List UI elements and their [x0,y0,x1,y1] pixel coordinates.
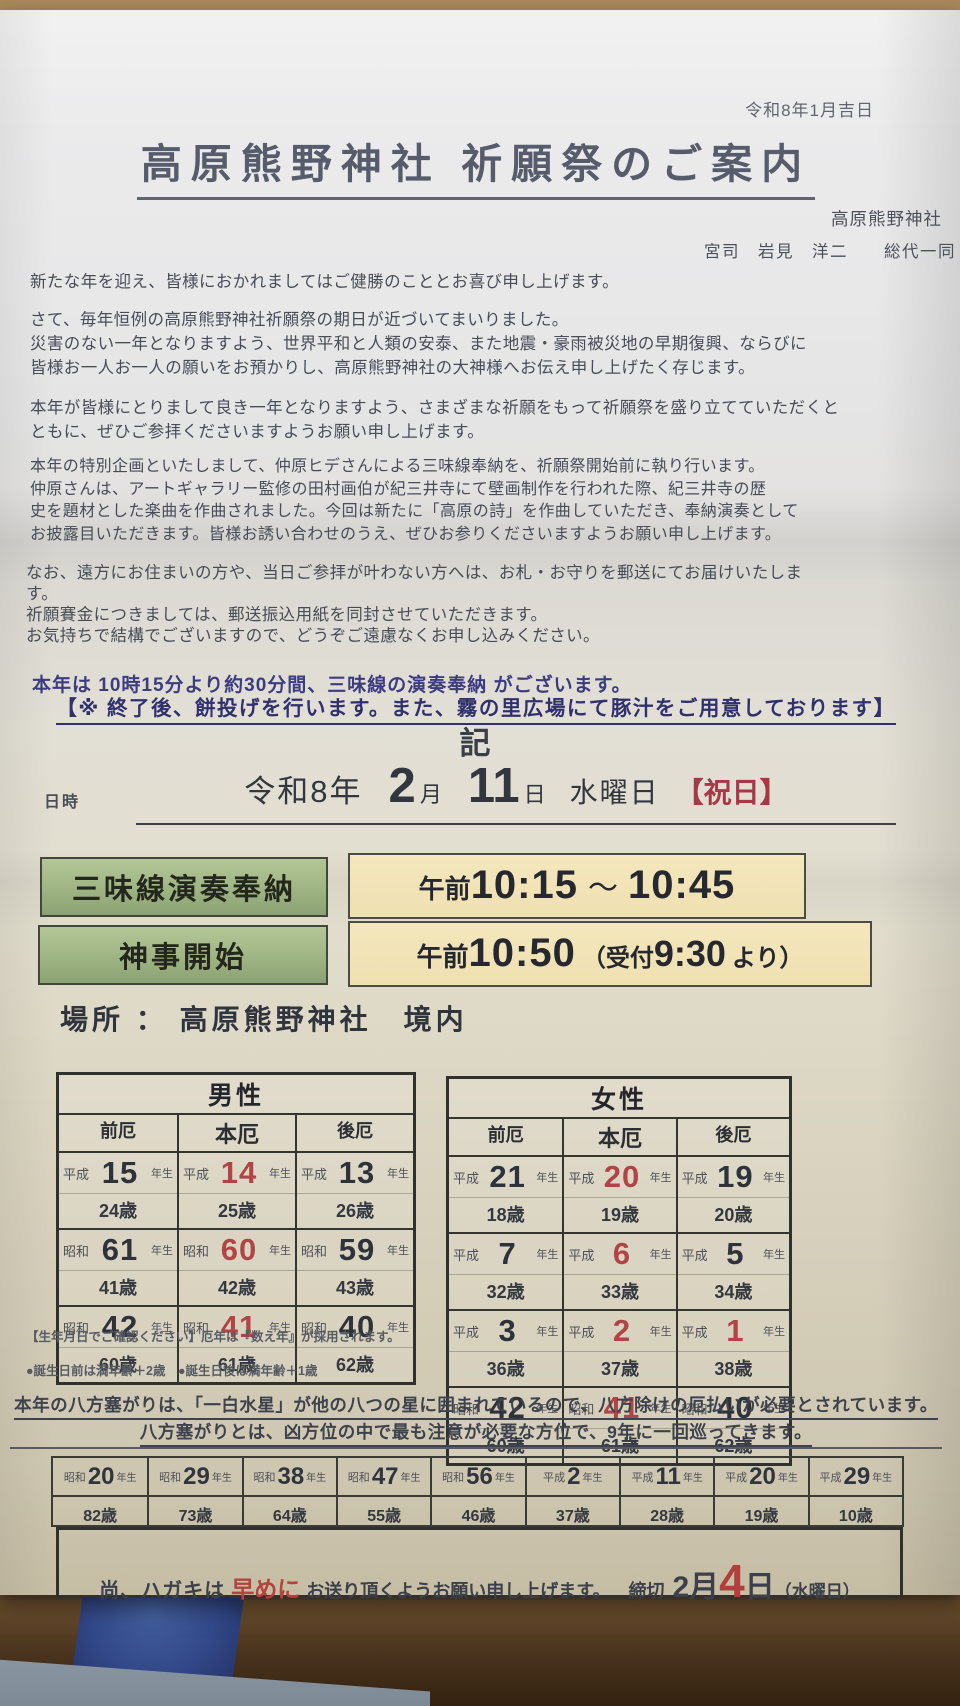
photo-of-notice: 令和8年1月吉日 高原熊野神社 祈願祭のご案内 高原熊野神社 宮司 岩見 洋二 … [0,0,960,1706]
age-value: 18歳 [449,1197,562,1232]
birth-year-number: 7 [499,1236,517,1272]
place-value: 高原熊野神社 境内 [180,1004,468,1035]
happo-age-cell: 19歳 [713,1495,807,1525]
footer-post: お送り頂くようお願い申し上げます。 [306,1577,610,1603]
happo-year-cell: 昭和20年生 [53,1458,147,1495]
happo-year-cell: 昭和38年生 [242,1458,336,1495]
era-label: 平成 [453,1168,479,1187]
happo-year-cell: 昭和47年生 [336,1458,430,1495]
era-label: 平成 [63,1164,89,1183]
yakudoshi-note: 【生年月日でご確認ください】厄年は『数え年』が採用されます。 ●誕生日前は満年齢… [26,1320,446,1388]
happo-year-cell: 平成29年生 [808,1458,902,1495]
divider-rule [10,1447,942,1449]
age-value: 25歳 [179,1193,295,1228]
happo-year-cell: 平成2年生 [525,1458,619,1495]
era-label: 平成 [568,1168,594,1187]
end-time: 10:45 [628,863,735,908]
yakudoshi-cell: 平成13年生26歳 [295,1153,413,1228]
footer-emphasis: 早めに [231,1570,300,1604]
year-suffix: 年生 [151,1242,173,1258]
era-label: 平成 [183,1164,209,1183]
column-header: 本厄 [177,1115,295,1153]
month-unit: 月 [420,777,442,809]
paragraph-mail-order: なお、遠方にお住まいの方や、当日ご参拝が叶わない方へは、お札・お守りを郵送にてお… [26,563,950,647]
paragraph-festival: さて、毎年恒例の高原熊野神社祈願祭の期日が近づいてまいりました。 災害のない一年… [30,308,954,380]
happo-age-cell: 10歳 [808,1495,902,1525]
column-header: 後厄 [676,1119,789,1157]
place-label: 場所 [60,1004,124,1035]
birth-year-number: 19 [717,1159,753,1195]
deadline-month: 2月 [672,1562,719,1606]
age-value: 38歳 [678,1351,789,1386]
era-label: 平成 [568,1322,594,1341]
year-suffix: 年生 [536,1323,558,1339]
birth-year-number: 21 [489,1159,525,1195]
happo-year-cell: 平成20年生 [713,1458,807,1495]
yakudoshi-cell: 平成3年生36歳 [449,1309,562,1386]
deadline-day: 4 [719,1554,745,1608]
day-number: 11 [468,758,520,814]
happo-age-cell: 73歳 [147,1495,241,1525]
happo-year-cell: 平成11年生 [619,1458,713,1495]
deadline-label: 締切 [628,1577,664,1603]
yakudoshi-cell: 平成5年生34歳 [676,1232,789,1309]
age-value: 24歳 [59,1193,177,1228]
paragraph-invitation: 本年が皆様にとりまして良き一年となりますよう、さまざまな祈願をもって祈願祭を盛り… [30,396,954,444]
age-value: 20歳 [678,1197,789,1232]
am-prefix: 午前 [417,937,469,974]
age-value: 42歳 [179,1270,295,1305]
deadline-box: 尚、ハガキは 早めに お送り頂くようお願い申し上げます。 締切 2月 4 日 （… [56,1527,903,1598]
birth-year-number: 15 [102,1155,138,1191]
yakudoshi-cell: 昭和59年生43歳 [295,1228,413,1305]
birth-year-number: 1 [726,1313,744,1349]
birth-year-number: 60 [221,1232,257,1268]
age-value: 43歳 [297,1270,413,1305]
yakudoshi-cell: 平成2年生37歳 [562,1309,675,1386]
am-prefix: 午前 [419,869,471,906]
schedule-label-ceremony: 神事開始 [38,925,328,985]
age-value: 19歳 [564,1197,675,1232]
issued-date: 令和8年1月吉日 [0,96,874,121]
day-unit: 日 [524,777,546,809]
document-title: 高原熊野神社 祈願祭のご案内 [0,130,956,200]
happo-age-cell: 64歳 [242,1495,336,1525]
birth-year-number: 5 [726,1236,744,1272]
happofusagari-line1: 本年の八方塞がりは、「一白水星」が他の八つの星に囲まれているので、八方除けの厄払… [0,1392,956,1420]
column-header: 前厄 [59,1115,177,1153]
yakudoshi-cell: 昭和61年生41歳 [59,1228,177,1305]
year-suffix: 年生 [387,1242,409,1258]
birth-year-number: 6 [613,1236,631,1272]
year-suffix: 年生 [763,1323,785,1339]
year-suffix: 年生 [650,1323,672,1339]
year-suffix: 年生 [650,1246,672,1262]
year-suffix: 年生 [763,1246,785,1262]
column-header: 前厄 [449,1119,562,1157]
age-value: 36歳 [449,1351,562,1386]
happo-age-cell: 82歳 [53,1495,147,1525]
era-label: 昭和 [183,1241,209,1260]
yakudoshi-cell: 平成21年生18歳 [449,1157,562,1232]
yakudoshi-cell: 平成19年生20歳 [676,1157,789,1232]
happo-age-cell: 28歳 [619,1495,713,1525]
start-time: 10:15 [471,863,578,908]
era-label: 平成 [682,1168,708,1187]
year-suffix: 年生 [536,1246,558,1262]
age-value: 37歳 [564,1351,675,1386]
yakudoshi-cell: 平成14年生25歳 [177,1153,295,1228]
yakudoshi-cell: 昭和60年生42歳 [177,1228,295,1305]
yakudoshi-cell: 平成20年生19歳 [562,1157,675,1232]
footer-pre: 尚、ハガキは [99,1574,225,1603]
era-label: 平成 [301,1164,327,1183]
place-separator: ： [136,1004,168,1035]
column-header: 本厄 [562,1119,675,1157]
yakudoshi-cell: 平成15年生24歳 [59,1153,177,1228]
year-suffix: 年生 [536,1169,558,1185]
era-year: 令和8年 [244,766,362,811]
age-value: 41歳 [59,1270,177,1305]
year-suffix: 年生 [269,1242,291,1258]
happo-age-cell: 55歳 [336,1495,430,1525]
year-suffix: 年生 [763,1169,785,1185]
birth-year-number: 61 [102,1232,138,1268]
event-date-line: 令和8年 2 月 11 日 水曜日 【祝日】 [136,758,896,825]
reception-time: 9:30 [654,933,726,975]
happofusagari-line2: 八方塞がりとは、凶方位の中で最も注意が必要な方位で、9年に一回巡ってきます。 [0,1419,956,1447]
paragraph-greeting: 新たな年を迎え、皆様におかれましてはご健勝のこととお喜び申し上げます。 [30,268,950,292]
holiday-badge: 【祝日】 [676,771,788,811]
birth-year-number: 14 [221,1155,257,1191]
birth-year-number: 3 [499,1313,517,1349]
yakudoshi-cell: 平成6年生33歳 [562,1232,675,1309]
reception-close: より） [732,938,804,973]
year-suffix: 年生 [269,1165,291,1181]
tilde-separator: ～ [588,863,618,907]
reception-open: （受付 [582,938,654,973]
schedule-time-ceremony: 午前 10:50 （受付 9:30 より） [348,921,872,987]
year-suffix: 年生 [151,1165,173,1181]
birth-year-number: 59 [339,1232,375,1268]
shrine-name: 高原熊野神社 [0,206,942,231]
birth-year-number: 2 [613,1313,631,1349]
yakudoshi-cell: 平成7年生32歳 [449,1232,562,1309]
era-label: 昭和 [301,1241,327,1260]
birth-year-number: 20 [604,1159,640,1195]
ceremony-time: 10:50 [469,931,576,976]
deadline-day-unit: 日 [745,1562,775,1606]
happofusagari-year-table: 昭和20年生昭和29年生昭和38年生昭和47年生昭和56年生平成2年生平成11年… [51,1456,904,1527]
table-title: 女性 [449,1079,789,1119]
schedule-time-shamisen: 午前 10:15 ～ 10:45 [348,853,806,919]
era-label: 昭和 [63,1241,89,1260]
era-label: 平成 [453,1322,479,1341]
era-label: 平成 [453,1245,479,1264]
deadline-weekday: （水曜日） [775,1577,860,1602]
happo-year-cell: 昭和29年生 [147,1458,241,1495]
column-header: 後厄 [295,1115,413,1153]
document-paper: 令和8年1月吉日 高原熊野神社 祈願祭のご案内 高原熊野神社 宮司 岩見 洋二 … [0,10,960,1595]
age-value: 34歳 [678,1274,789,1309]
age-value: 26歳 [297,1193,413,1228]
era-label: 平成 [682,1322,708,1341]
record-mark: 記 [0,718,956,763]
year-suffix: 年生 [387,1165,409,1181]
happo-year-cell: 昭和56年生 [430,1458,524,1495]
happo-age-cell: 37歳 [525,1495,619,1525]
year-suffix: 年生 [650,1169,672,1185]
era-label: 平成 [682,1245,708,1264]
place-line: 場所 ： 高原熊野神社 境内 [60,998,468,1038]
age-value: 32歳 [449,1274,562,1309]
happo-age-cell: 46歳 [430,1495,524,1525]
datetime-label: 日時 [44,788,80,812]
month-number: 2 [389,758,416,814]
age-value: 33歳 [564,1274,675,1309]
birth-year-number: 13 [339,1155,375,1191]
yakudoshi-cell: 平成1年生38歳 [676,1309,789,1386]
weekday: 水曜日 [570,771,660,811]
schedule-label-shamisen: 三味線演奏奉納 [40,857,328,917]
era-label: 平成 [568,1245,594,1264]
paragraph-shamisen: 本年の特別企画といたしまして、仲原ヒデさんによる三味線奉納を、祈願祭開始前に執り… [30,456,958,546]
signature-line: 宮司 岩見 洋二 総代一同 [0,238,956,262]
table-title: 男性 [59,1075,413,1115]
